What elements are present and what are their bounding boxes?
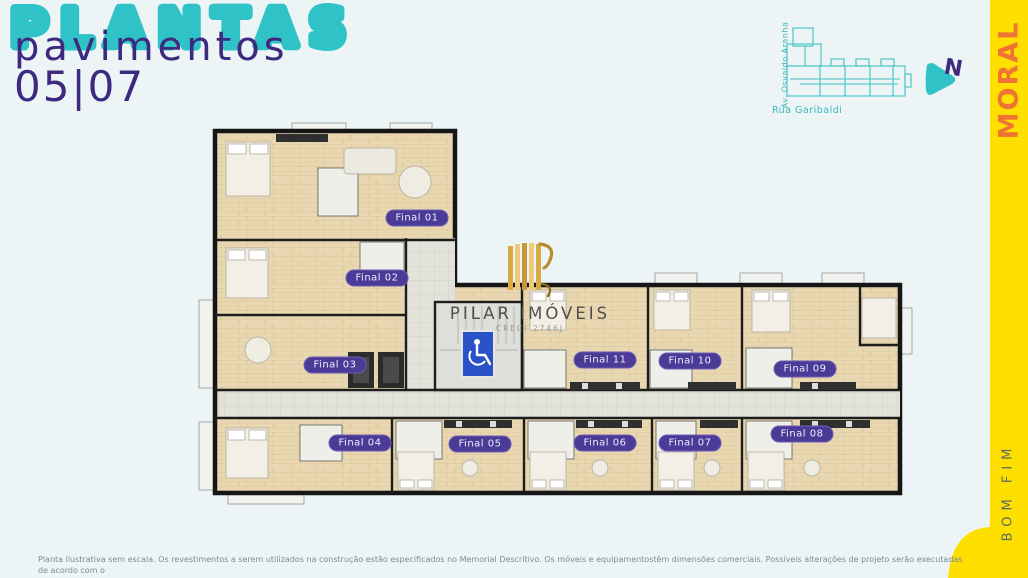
unit-badge-final-01: Final 01 [386, 210, 449, 227]
logo-creci: CRECI 2746J [440, 324, 620, 333]
brand-bomfim: BOM FIM [1001, 443, 1016, 542]
unit-badge-final-11: Final 11 [574, 352, 637, 369]
street-label-left: Av. Osvaldo Aranha [730, 10, 840, 120]
floors-range: 05|07 [14, 62, 145, 111]
north-letter: N [942, 55, 964, 83]
logo-name: PILAR IMÓVEIS [440, 304, 620, 323]
pillar-icon [504, 240, 556, 298]
watermark-logo: PILAR IMÓVEIS CRECI 2746J [440, 240, 620, 333]
unit-badge-final-10: Final 10 [659, 353, 722, 370]
unit-badge-final-06: Final 06 [574, 435, 637, 452]
unit-badge-final-08: Final 08 [771, 426, 834, 443]
disclaimer: Planta ilustrativa sem escala. Os revest… [38, 554, 968, 578]
accessibility-icon [462, 331, 494, 377]
unit-badge-final-07: Final 07 [659, 435, 722, 452]
unit-badge-final-03: Final 03 [304, 357, 367, 374]
unit-badge-final-09: Final 09 [774, 361, 837, 378]
disclaimer-line1: Planta ilustrativa sem escala. Os revest… [38, 554, 968, 576]
brand-moral: MORAL [994, 21, 1025, 140]
unit-badge-final-05: Final 05 [449, 436, 512, 453]
page: PLANTAS pavimentos 05|07 Av. Osvaldo Ara… [0, 0, 1028, 578]
unit-badge-final-04: Final 04 [329, 435, 392, 452]
street-label-bottom: Rua Garibaldi [772, 105, 842, 116]
unit-badge-final-02: Final 02 [346, 270, 409, 287]
